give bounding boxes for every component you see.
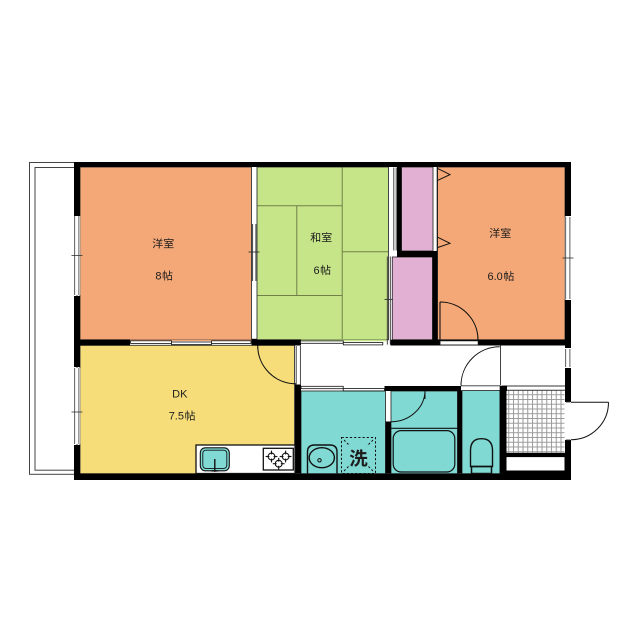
svg-text:6: 6 [313,265,319,277]
svg-text:6.0: 6.0 [488,271,503,283]
svg-text:8: 8 [155,271,161,283]
svg-text:7.5: 7.5 [169,411,184,423]
svg-text:DK: DK [172,388,188,400]
